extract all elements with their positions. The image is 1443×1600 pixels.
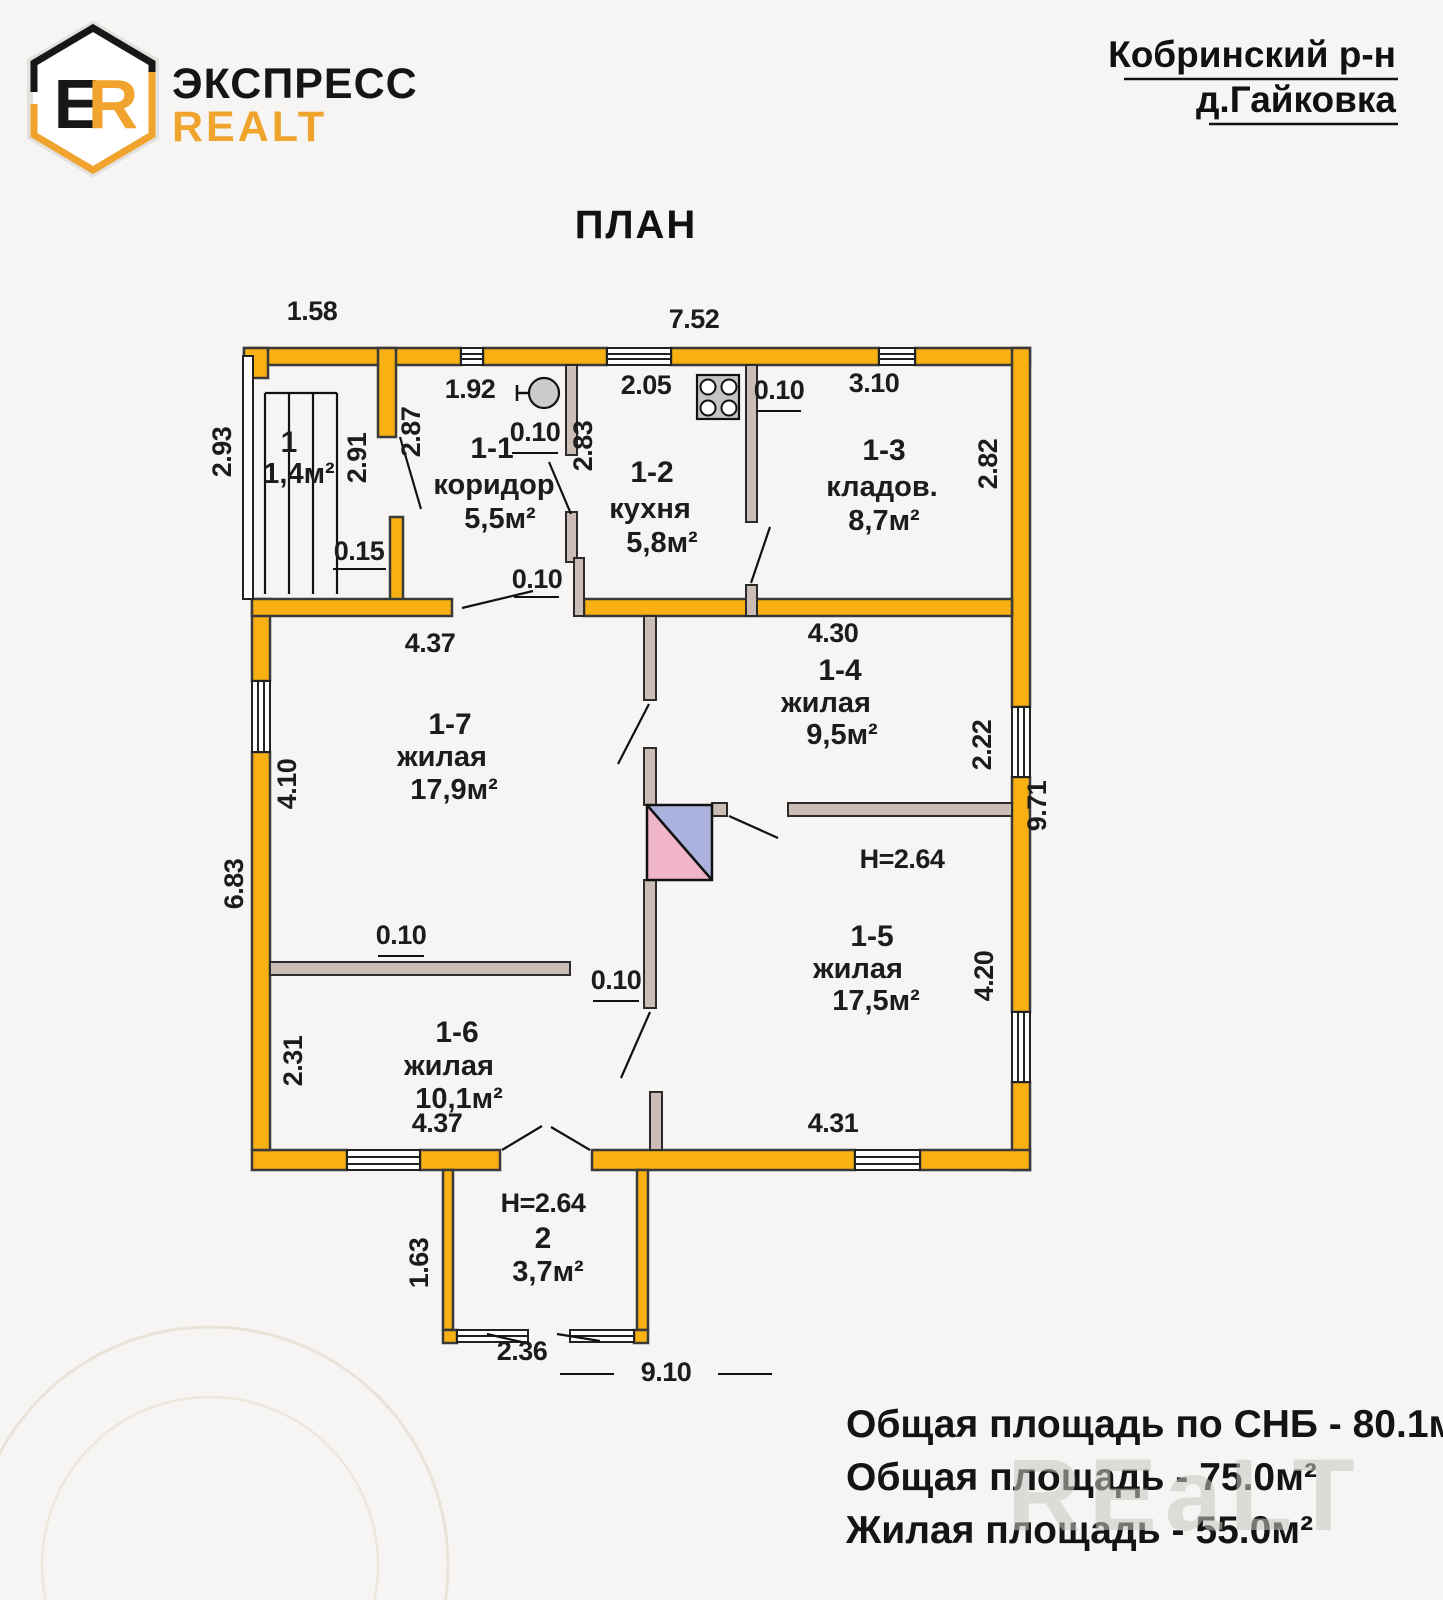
dim-label: 0.10 (376, 920, 427, 950)
partition-corridor-kitchen-lower (566, 512, 577, 562)
room-name: кухня (609, 493, 691, 525)
dim-label: 4.37 (405, 628, 456, 658)
room-area: 9,5м² (806, 719, 878, 751)
dim-label: 2.31 (278, 1035, 308, 1086)
room-id: 1-5 (850, 920, 893, 953)
dim-label: 0.10 (754, 375, 805, 405)
window-top-3 (879, 348, 915, 365)
room-area: 5,5м² (464, 503, 536, 535)
door-room14-room15 (729, 816, 778, 838)
corridor-left-stub (378, 348, 396, 437)
address-village: д.Гайковка (1196, 79, 1396, 120)
dim-label: 2.83 (568, 420, 598, 471)
door-leaves (400, 437, 778, 1344)
dim-label: 0.10 (591, 965, 642, 995)
window-left (252, 681, 270, 752)
window-right-222 (1012, 707, 1030, 777)
dim-label: 0.10 (512, 564, 563, 594)
scanned-floor-plan-page: E R ЭКСПРЕСС REALT Кобринский р-н д.Гайк… (0, 0, 1443, 1600)
dim-label: 9.71 (1022, 780, 1052, 831)
height-label: H=2.64 (860, 844, 945, 874)
room-area: 10,1м² (415, 1083, 503, 1115)
porch-left-wall (443, 1170, 453, 1330)
boiler-icon (517, 378, 559, 408)
dim-label: 1.58 (287, 296, 338, 326)
company-logo: E R ЭКСПРЕСС REALT (30, 24, 418, 174)
room-area: 5,8м² (626, 527, 698, 559)
room-id: 1-2 (630, 456, 673, 489)
dim-label: 2.36 (497, 1336, 548, 1366)
room-stairs: 1 1,4м² (263, 426, 335, 490)
mid-wall-left (252, 599, 452, 616)
door-room15-room16 (621, 1012, 650, 1078)
window-bottom-1 (347, 1150, 420, 1170)
window-bottom-2 (855, 1150, 920, 1170)
partition-center-above-furnace (644, 748, 656, 805)
room-name: жилая (396, 741, 487, 773)
dim-label: 2.82 (973, 439, 1003, 490)
partition-center-below-furnace (644, 880, 656, 1008)
dim-label: 2.05 (621, 370, 672, 400)
dim-label: 0.10 (510, 417, 561, 447)
dim-label: 2.91 (342, 432, 372, 483)
room-1-1-corridor: 1-1 коридор 5,5м² (433, 432, 554, 535)
mid-wall-right (584, 599, 1012, 616)
window-top-1 (461, 348, 483, 365)
room-name: кладов. (826, 471, 937, 503)
dim-label: 0.15 (334, 536, 385, 566)
dim-label: 1.63 (404, 1237, 434, 1288)
room-1-3-storage: 1-3 кладов. 8,7м² (826, 434, 937, 537)
annex-walls (243, 356, 253, 599)
dim-label: 7.52 (669, 304, 720, 334)
partition-center-upper (644, 616, 656, 700)
room-area: 8,7м² (848, 505, 920, 537)
dim-label: 4.30 (808, 618, 859, 648)
partition-furnace-stub (712, 803, 727, 816)
property-address: Кобринский р-н д.Гайковка (1108, 34, 1398, 124)
brand-name-bottom: REALT (172, 103, 327, 151)
room-id: 1-1 (470, 432, 513, 465)
room-id: 2 (535, 1222, 552, 1255)
dim-label: 4.31 (808, 1108, 859, 1138)
logo-letter-r: R (88, 65, 139, 143)
room-2-porch: H=2.64 2 3,7м² (501, 1188, 586, 1288)
floor-plan-canvas: E R ЭКСПРЕСС REALT Кобринский р-н д.Гайк… (0, 0, 1443, 1600)
dim-label: 2.87 (396, 407, 426, 458)
room-id: 1-6 (435, 1016, 478, 1049)
room-1-2-kitchen: 1-2 кухня 5,8м² (609, 456, 698, 559)
porch-right-wall (637, 1170, 648, 1330)
room-id: 1 (281, 426, 298, 459)
brand-name-top: ЭКСПРЕСС (172, 60, 418, 108)
partition-kitchen-storage-stub (746, 585, 757, 616)
porch-window-2 (570, 1330, 634, 1342)
dim-label: 9.10 (641, 1357, 692, 1387)
height-label: H=2.64 (501, 1188, 586, 1218)
room-area: 3,7м² (512, 1256, 584, 1288)
room-area: 1,4м² (263, 458, 335, 490)
dim-label: 3.10 (849, 368, 900, 398)
dim-label: 1.92 (445, 374, 496, 404)
dim-label: 6.83 (219, 858, 249, 909)
page-title: ПЛАН (575, 203, 698, 247)
entry-door-leaf-right (551, 1127, 590, 1150)
dim-label: 4.20 (969, 951, 999, 1002)
partition-room17-room16 (270, 962, 570, 975)
furnace-icon (647, 805, 712, 880)
partition-room14-room15 (788, 803, 1012, 816)
room-1-4-living: 1-4 жилая 9,5м² (780, 654, 878, 751)
partition-center-bottom (650, 1092, 662, 1150)
address-district: Кобринский р-н (1108, 34, 1396, 75)
room-id: 1-3 (862, 434, 905, 467)
door-kitchen-storage (751, 527, 770, 583)
room-name: коридор (433, 469, 554, 501)
room-id: 1-4 (818, 654, 862, 687)
room-1-5-living: 1-5 жилая 17,5м² (812, 920, 920, 1017)
partition-mid-stub (574, 558, 584, 616)
room-name: жилая (812, 953, 903, 985)
window-top-2 (607, 348, 671, 365)
gas-stove-icon (697, 375, 739, 419)
room-1-6-living: 1-6 жилая 10,1м² (403, 1016, 503, 1115)
room-area: 17,9м² (410, 774, 498, 806)
dim-label: 2.22 (967, 720, 997, 771)
stamp-icon (0, 1327, 448, 1600)
room-name: жилая (780, 687, 871, 719)
watermark-text: REaLT (1007, 1438, 1362, 1552)
stub-wall-015 (390, 517, 403, 603)
room-1-7-living: 1-7 жилая 17,9м² (396, 708, 498, 806)
stairs-icon (265, 393, 337, 594)
window-right-420 (1012, 1012, 1030, 1082)
room-area: 17,5м² (832, 985, 920, 1017)
dim-label: 4.10 (272, 759, 302, 810)
room-id: 1-7 (428, 708, 471, 741)
dim-label: 2.93 (207, 426, 237, 477)
room-name: жилая (403, 1050, 494, 1082)
entry-door-leaf-left (502, 1126, 542, 1150)
